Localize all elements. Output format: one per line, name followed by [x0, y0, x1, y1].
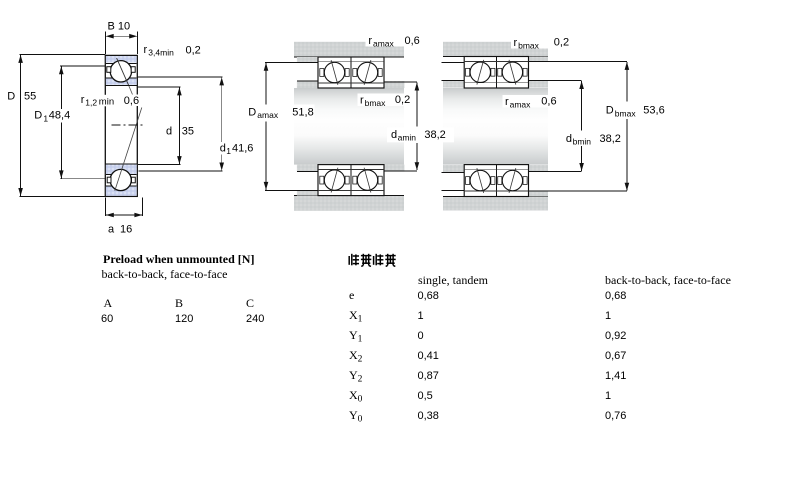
svg-text:r: r — [360, 94, 364, 106]
svg-text:0,2: 0,2 — [186, 44, 201, 56]
svg-text:0,6: 0,6 — [541, 96, 556, 108]
svg-text:0,6: 0,6 — [405, 35, 420, 47]
svg-text:D: D — [606, 105, 614, 117]
svg-text:d: d — [391, 129, 397, 141]
svg-text:41,6: 41,6 — [232, 142, 253, 154]
svg-text:bmax: bmax — [518, 40, 540, 50]
svg-text:bmax: bmax — [615, 108, 637, 118]
svg-text:55: 55 — [24, 90, 36, 102]
svg-text:D: D — [7, 90, 15, 102]
svg-text:amax: amax — [257, 110, 279, 120]
svg-text:d: d — [220, 142, 226, 154]
svg-text:35: 35 — [182, 126, 194, 138]
svg-text:16: 16 — [120, 224, 132, 236]
svg-text:0,6: 0,6 — [124, 95, 139, 107]
svg-text:amax: amax — [373, 39, 395, 49]
svg-text:0,2: 0,2 — [554, 37, 569, 49]
svg-text:D: D — [34, 110, 42, 122]
svg-text:51,8: 51,8 — [292, 106, 313, 118]
svg-text:min: min — [99, 97, 114, 108]
svg-text:r: r — [514, 37, 518, 49]
svg-text:1: 1 — [226, 146, 231, 156]
svg-text:bmin: bmin — [573, 136, 592, 146]
svg-text:r: r — [144, 44, 148, 56]
svg-text:1,2: 1,2 — [85, 98, 97, 108]
svg-text:d: d — [166, 126, 172, 138]
svg-text:amax: amax — [510, 99, 532, 109]
svg-text:B 10: B 10 — [108, 21, 131, 33]
svg-text:0,2: 0,2 — [395, 94, 410, 106]
svg-text:38,2: 38,2 — [600, 133, 621, 145]
svg-text:a: a — [108, 224, 115, 236]
svg-text:bmax: bmax — [365, 98, 387, 108]
svg-text:3,4min: 3,4min — [148, 48, 174, 58]
svg-text:38,2: 38,2 — [424, 129, 445, 141]
svg-text:1: 1 — [43, 113, 48, 123]
svg-text:r: r — [505, 96, 509, 108]
svg-text:r: r — [81, 94, 85, 106]
svg-text:r: r — [368, 35, 372, 47]
svg-text:D: D — [248, 106, 256, 118]
svg-text:48,4: 48,4 — [49, 110, 70, 122]
svg-text:d: d — [566, 133, 572, 145]
svg-text:53,6: 53,6 — [643, 105, 664, 117]
svg-text:amin: amin — [398, 133, 417, 143]
